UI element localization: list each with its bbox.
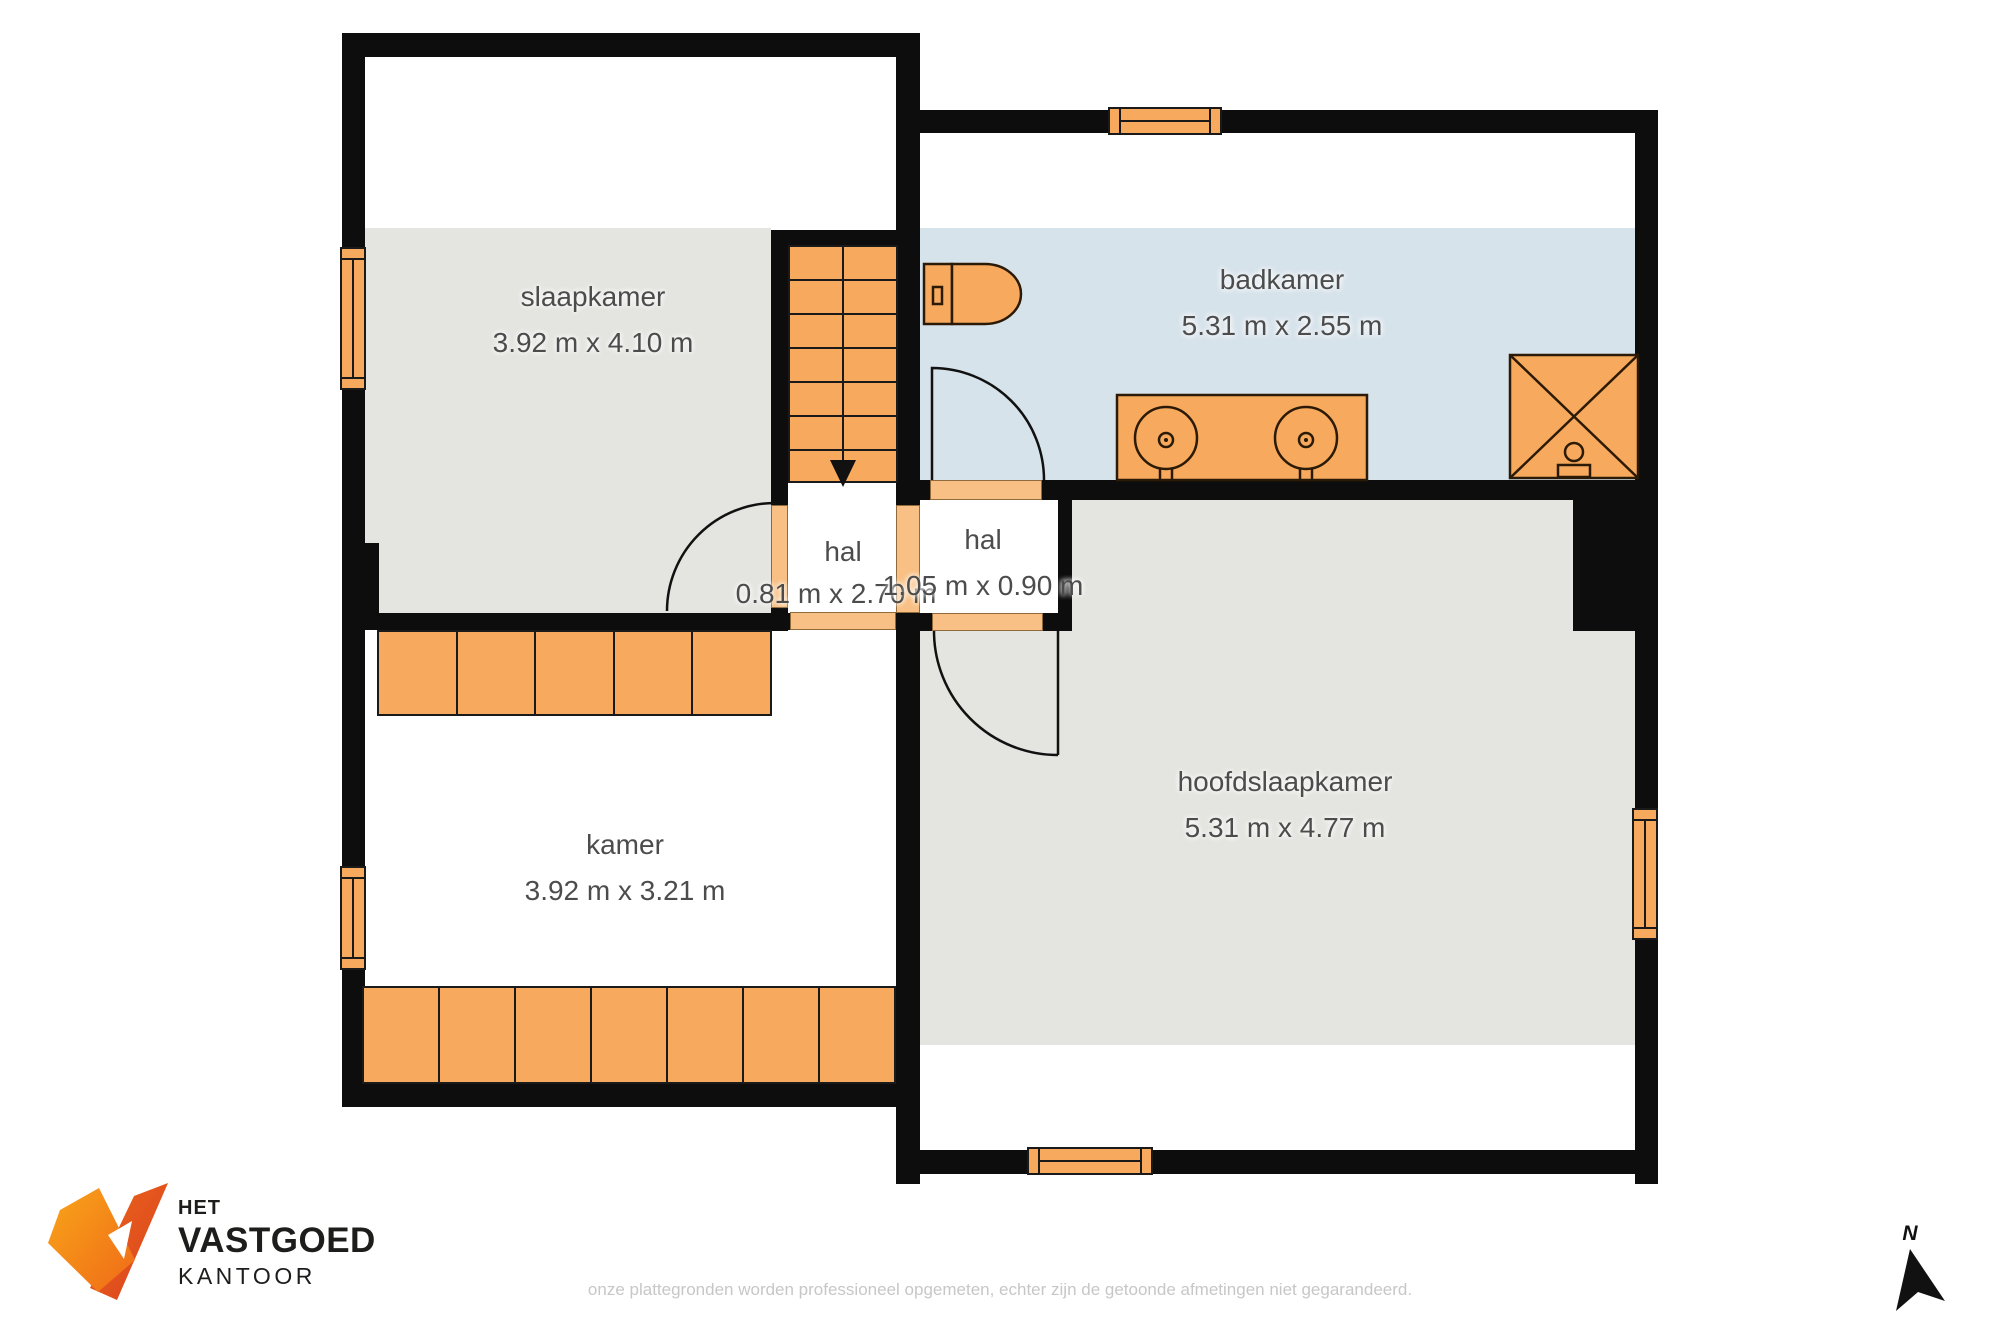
room-dimensions: 5.31 m x 2.55 m [1182,303,1383,349]
room-dimensions: 3.92 m x 4.10 m [493,320,694,366]
north-arrow-icon [1896,1249,1945,1311]
room-dimensions: 5.31 m x 4.77 m [1178,805,1393,851]
room-name: hoofdslaapkamer [1178,759,1393,805]
logo-v-mark-icon [48,1183,168,1300]
logo: HET VASTGOED KANTOOR [178,1198,376,1288]
stairs-down-arrow-icon [830,460,856,487]
room-label-hal-rechts: hal [964,524,1001,556]
room-label-hal-links: hal [824,536,861,568]
room-dimensions: 3.92 m x 3.21 m [525,868,726,914]
double-sink-icon [1117,395,1367,480]
logo-line-vastgoed: VASTGOED [178,1223,376,1258]
north-label: N [1902,1222,1917,1246]
room-label-kamer: kamer 3.92 m x 3.21 m [525,822,726,914]
room-name: badkamer [1182,257,1383,303]
room-label-badkamer: badkamer 5.31 m x 2.55 m [1182,257,1383,349]
toilet-icon [924,264,1021,324]
room-name: kamer [525,822,726,868]
logo-line-kantoor: KANTOOR [178,1265,376,1288]
door-arc-badkamer-icon [932,368,1044,480]
room-name: slaapkamer [493,274,694,320]
door-arc-hoofdslaapkamer-icon [934,631,1058,755]
shower-icon [1510,355,1638,478]
logo-line-het: HET [178,1198,376,1218]
disclaimer-text: onze plattegronden worden professioneel … [588,1280,1412,1300]
floor-plan: slaapkamer 3.92 m x 4.10 m badkamer 5.31… [0,0,2000,1333]
room-label-hoofdslaapkamer: hoofdslaapkamer 5.31 m x 4.77 m [1178,759,1393,851]
plan-overlay [0,0,2000,1333]
room-label-slaapkamer: slaapkamer 3.92 m x 4.10 m [493,274,694,366]
room-dimensions-hal-rechts: 1.05 m x 0.90 m [883,570,1084,602]
